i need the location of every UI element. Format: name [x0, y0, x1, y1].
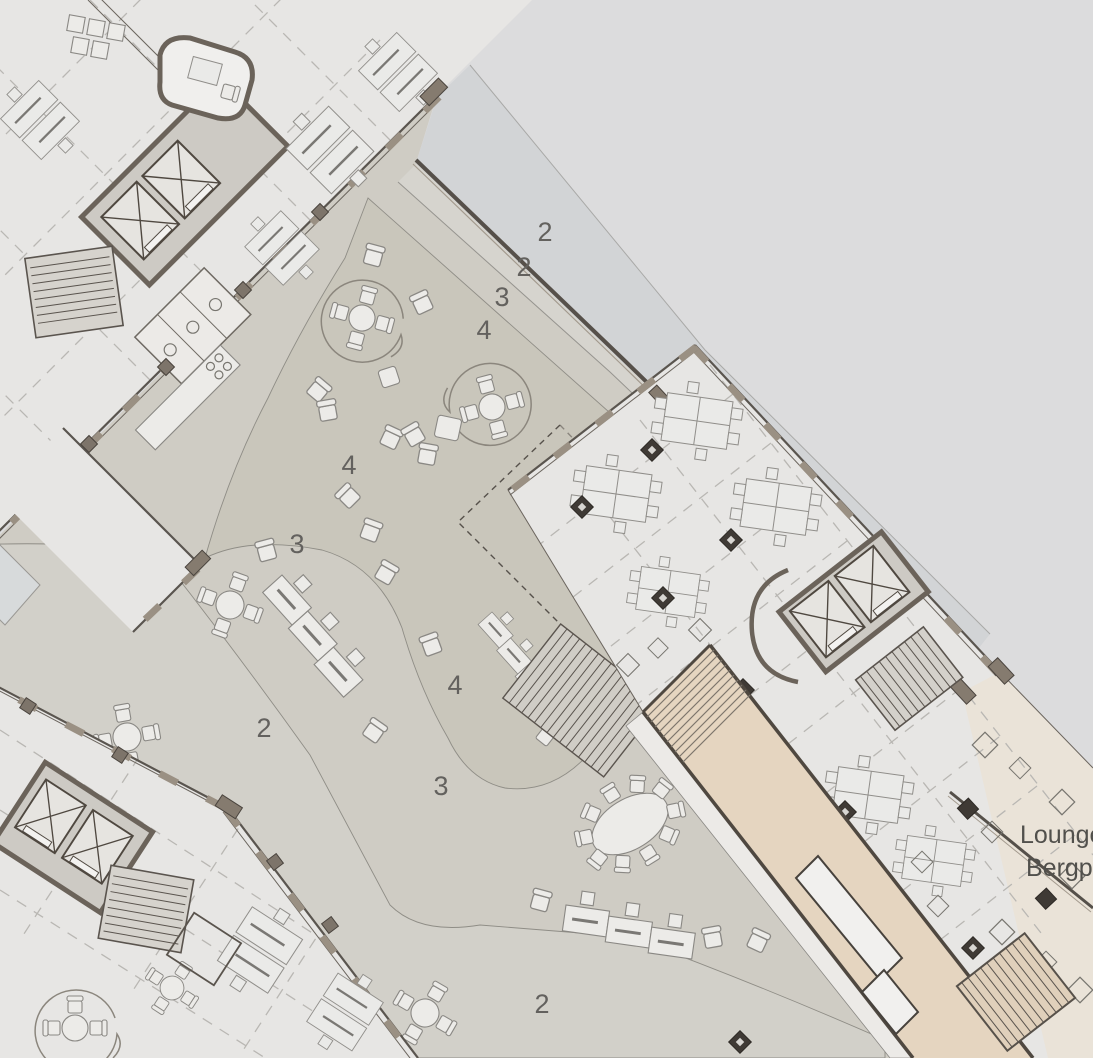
floor-plan-page: 2234434232 Lounge Bergpf — [0, 0, 1093, 1058]
nw-staircase — [25, 246, 123, 337]
sw-staircase — [98, 865, 194, 952]
zone-marker: 2 — [534, 989, 549, 1019]
zone-marker: 3 — [494, 282, 509, 312]
zone-marker: 3 — [433, 771, 448, 801]
zone-marker: 2 — [537, 217, 552, 247]
zone-marker: 3 — [289, 529, 304, 559]
lounge-label-line2: Bergpf — [1026, 854, 1093, 882]
zone-marker: 4 — [341, 450, 356, 480]
zone-marker: 4 — [476, 315, 491, 345]
small-table — [434, 415, 462, 442]
floor-plan-canvas: 2234434232 Lounge Bergpf — [0, 0, 1093, 1058]
lounge-label-line1: Lounge — [1020, 821, 1093, 849]
zone-marker: 2 — [516, 252, 531, 282]
zone-marker: 4 — [447, 670, 462, 700]
zone-marker: 2 — [256, 713, 271, 743]
